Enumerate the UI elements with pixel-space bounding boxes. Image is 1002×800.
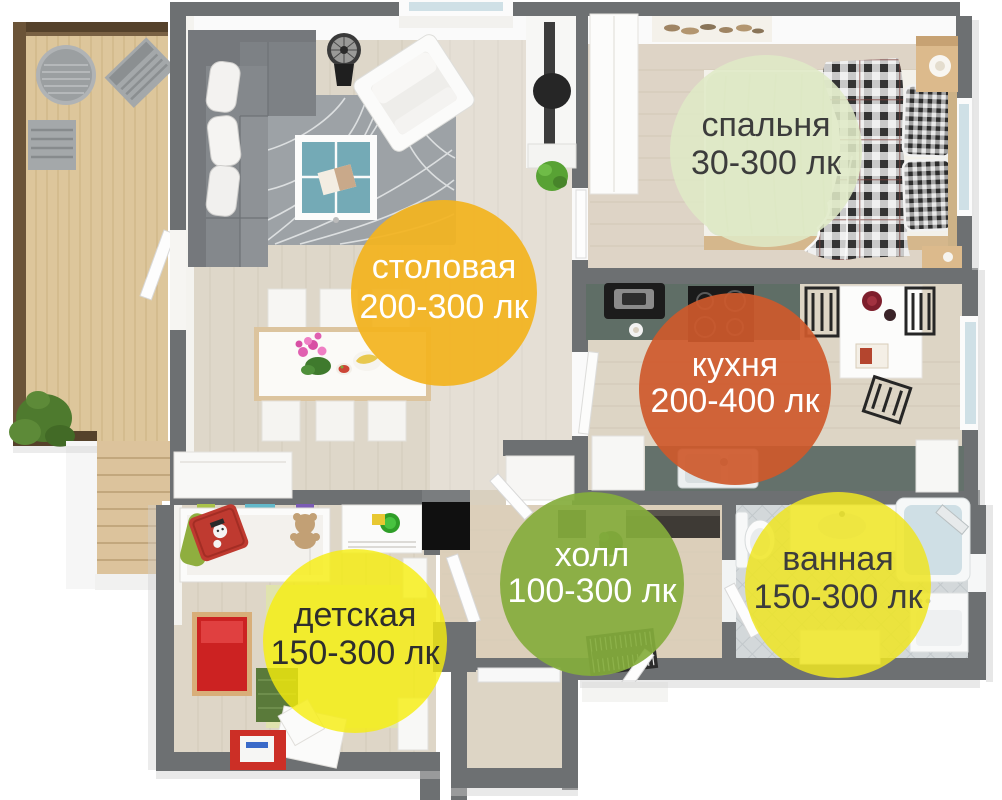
svg-text:100-300 лк: 100-300 лк — [508, 572, 678, 610]
svg-text:30-300 лк: 30-300 лк — [691, 144, 842, 182]
svg-text:столовая: столовая — [372, 248, 516, 286]
svg-text:ванная: ванная — [782, 540, 893, 578]
svg-text:спальня: спальня — [701, 106, 830, 144]
svg-text:детская: детская — [294, 596, 417, 634]
svg-text:200-300 лк: 200-300 лк — [360, 288, 530, 326]
svg-text:150-300 лк: 150-300 лк — [271, 634, 441, 672]
svg-text:холл: холл — [555, 536, 629, 574]
svg-text:200-400 лк: 200-400 лк — [651, 382, 821, 420]
svg-text:кухня: кухня — [692, 346, 778, 384]
svg-text:150-300 лк: 150-300 лк — [754, 578, 924, 616]
